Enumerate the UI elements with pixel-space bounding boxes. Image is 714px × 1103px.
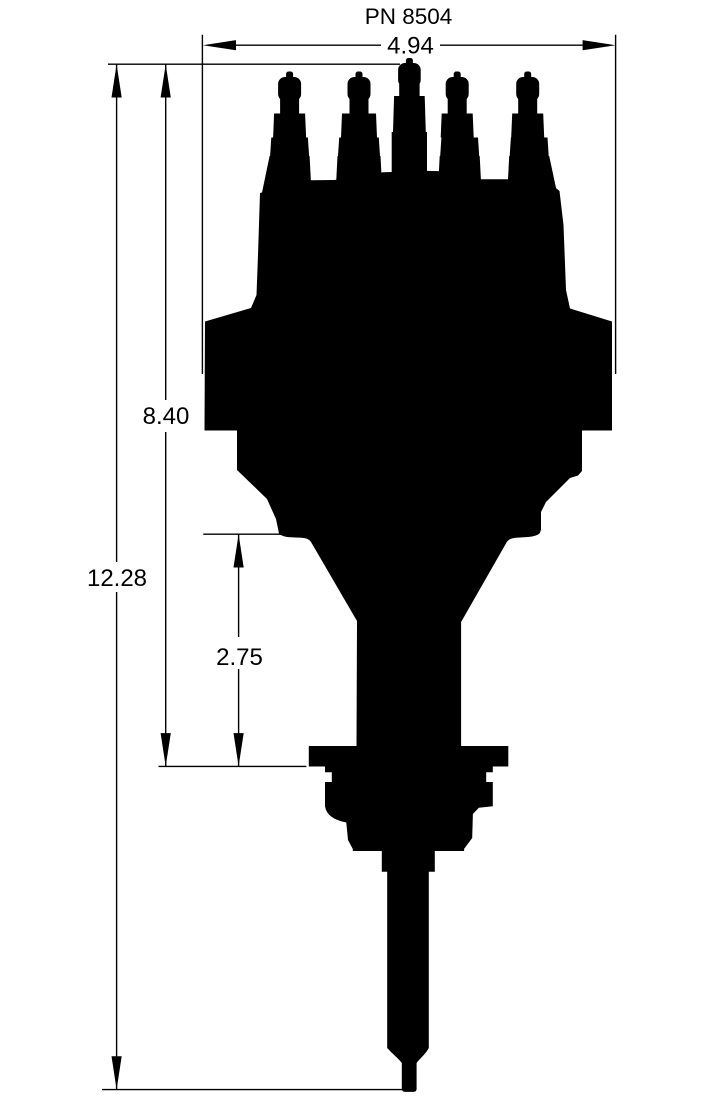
- svg-text:PN 8504: PN 8504: [365, 4, 453, 29]
- svg-text:12.28: 12.28: [87, 565, 147, 592]
- svg-text:8.40: 8.40: [143, 403, 190, 430]
- svg-text:4.94: 4.94: [387, 33, 434, 60]
- svg-text:2.75: 2.75: [216, 644, 263, 671]
